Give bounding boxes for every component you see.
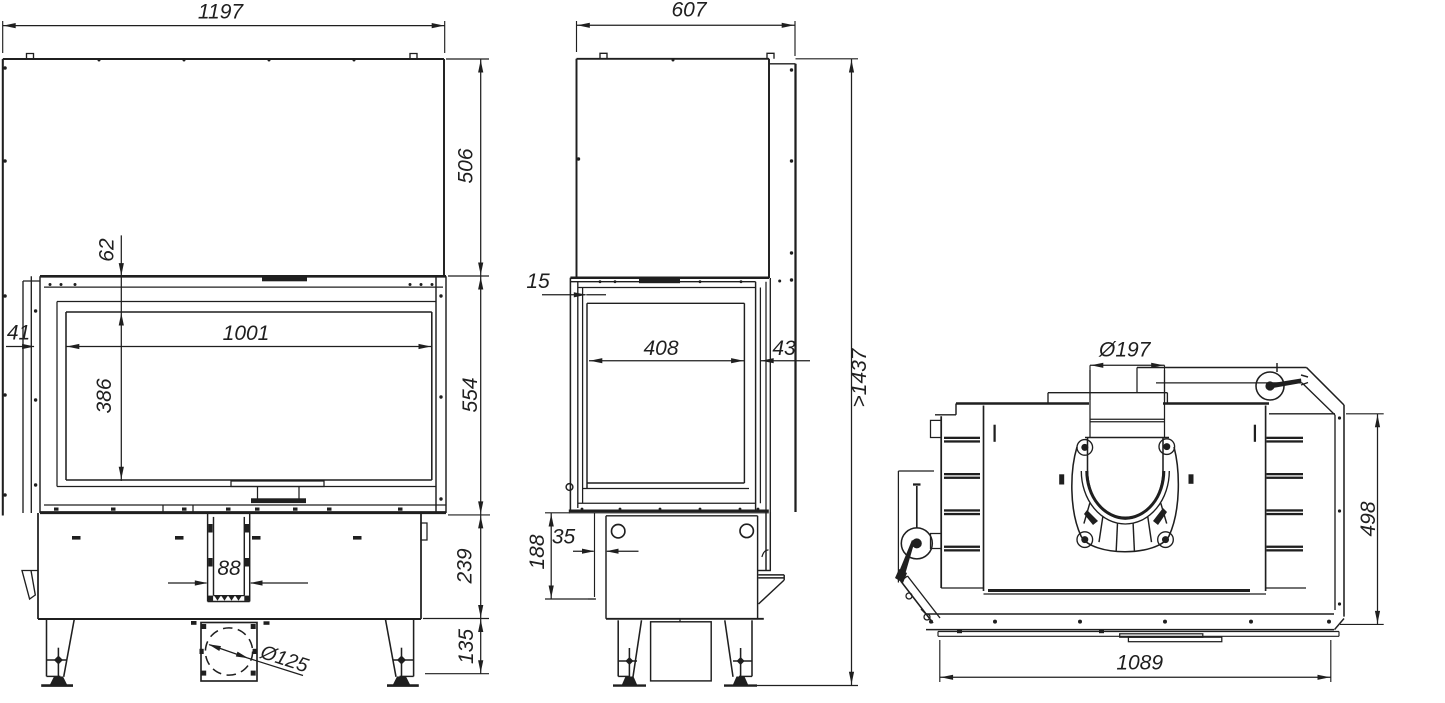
svg-text:>1437: >1437	[848, 347, 871, 407]
svg-text:506: 506	[455, 148, 478, 183]
svg-text:135: 135	[455, 629, 478, 664]
svg-text:41: 41	[7, 322, 30, 345]
svg-text:35: 35	[552, 526, 576, 549]
svg-text:1197: 1197	[198, 1, 244, 24]
svg-text:43: 43	[772, 337, 796, 360]
svg-text:408: 408	[643, 337, 678, 360]
svg-text:554: 554	[459, 377, 482, 412]
svg-text:498: 498	[1357, 501, 1380, 536]
svg-text:188: 188	[526, 534, 549, 569]
svg-text:62: 62	[96, 238, 119, 262]
svg-text:386: 386	[93, 378, 116, 413]
svg-text:239: 239	[454, 548, 477, 584]
svg-text:1001: 1001	[223, 322, 270, 345]
svg-text:Ø197: Ø197	[1098, 339, 1152, 362]
svg-text:1089: 1089	[1116, 652, 1163, 675]
svg-text:607: 607	[671, 0, 707, 22]
svg-text:15: 15	[526, 270, 550, 293]
svg-text:88: 88	[217, 557, 241, 580]
